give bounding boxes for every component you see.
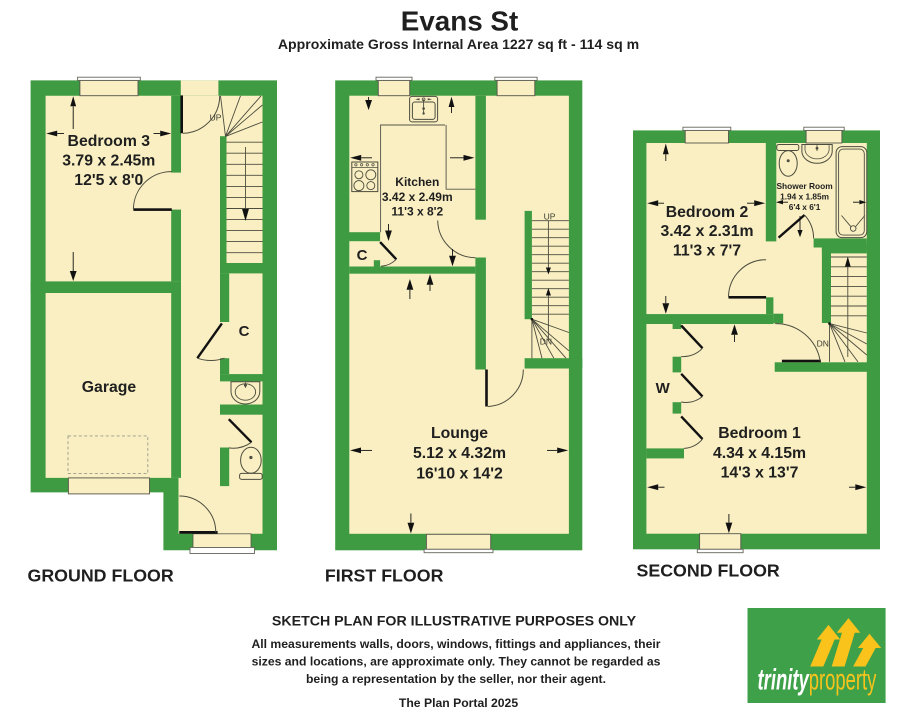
svg-text:Bedroom 2: Bedroom 2	[666, 204, 749, 221]
svg-text:Lounge: Lounge	[431, 425, 488, 442]
svg-text:Shower Room: Shower Room	[776, 181, 832, 191]
svg-text:Garage: Garage	[82, 379, 137, 396]
svg-text:FIRST FLOOR: FIRST FLOOR	[325, 566, 444, 586]
svg-text:DN: DN	[817, 338, 829, 348]
svg-text:All measurements walls, doors,: All measurements walls, doors, windows, …	[251, 637, 660, 651]
svg-text:Bedroom 3: Bedroom 3	[68, 133, 151, 150]
svg-text:3.42 x 2.31m: 3.42 x 2.31m	[660, 223, 753, 240]
svg-text:11'3 x 7'7: 11'3 x 7'7	[673, 243, 741, 260]
svg-text:Evans St: Evans St	[401, 6, 518, 37]
svg-text:trinityproperty: trinityproperty	[758, 663, 877, 697]
svg-text:W: W	[656, 380, 671, 397]
svg-text:C: C	[357, 247, 368, 264]
svg-text:C: C	[239, 323, 250, 340]
svg-text:Kitchen: Kitchen	[395, 175, 439, 189]
svg-text:UP: UP	[210, 113, 222, 123]
svg-text:3.42 x 2.49m: 3.42 x 2.49m	[382, 190, 453, 204]
svg-text:3.79 x 2.45m: 3.79 x 2.45m	[62, 153, 155, 170]
svg-text:14'3 x 13'7: 14'3 x 13'7	[721, 465, 799, 482]
svg-text:UP: UP	[544, 212, 556, 222]
svg-text:6'4 x 6'1: 6'4 x 6'1	[789, 202, 821, 212]
svg-text:SECOND FLOOR: SECOND FLOOR	[637, 561, 780, 581]
svg-text:11'3 x 8'2: 11'3 x 8'2	[391, 205, 443, 219]
svg-text:DN: DN	[540, 337, 552, 347]
svg-text:1.94 x 1.85m: 1.94 x 1.85m	[780, 192, 829, 202]
svg-text:sizes and locations, are appro: sizes and locations, are approximate onl…	[252, 655, 661, 669]
svg-text:12'5 x 8'0: 12'5 x 8'0	[74, 172, 143, 189]
svg-text:5.12 x 4.32m: 5.12 x 4.32m	[413, 445, 506, 462]
svg-text:SKETCH PLAN FOR ILLUSTRATIVE P: SKETCH PLAN FOR ILLUSTRATIVE PURPOSES ON…	[272, 614, 637, 630]
svg-text:4.34 x 4.15m: 4.34 x 4.15m	[713, 445, 806, 462]
svg-text:Bedroom 1: Bedroom 1	[718, 425, 801, 442]
svg-text:being a representation by the: being a representation by the seller, no…	[306, 672, 606, 686]
svg-text:16'10 x 14'2: 16'10 x 14'2	[416, 466, 503, 483]
svg-text:The Plan Portal 2025: The Plan Portal 2025	[399, 696, 518, 710]
svg-text:Approximate Gross Internal Are: Approximate Gross Internal Area 1227 sq …	[278, 36, 639, 52]
svg-text:GROUND FLOOR: GROUND FLOOR	[28, 566, 174, 586]
